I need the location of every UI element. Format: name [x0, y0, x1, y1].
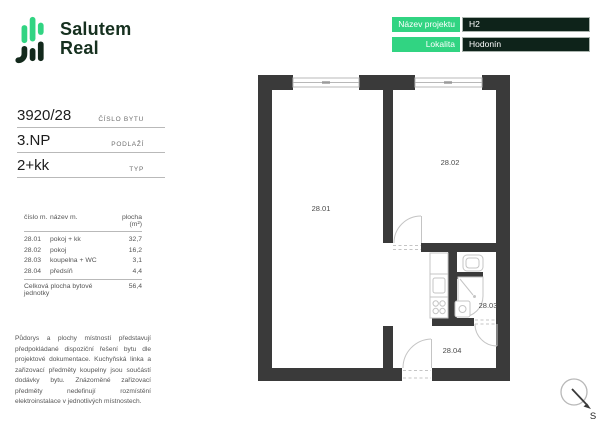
wall	[432, 368, 510, 381]
toilet-icon	[463, 255, 483, 271]
kitchen-counter-icon	[430, 253, 448, 318]
wall	[258, 75, 272, 381]
wall	[383, 90, 393, 243]
interior-walls	[383, 90, 496, 368]
room-label-28-03: 28.03	[479, 301, 498, 310]
floorplan-page: Salutem Real Název projektu H2 Lokalita …	[0, 0, 612, 433]
washing-machine-icon	[455, 301, 470, 317]
wall	[383, 326, 393, 368]
wall	[258, 75, 293, 90]
wall	[496, 75, 510, 381]
room-label-28-01: 28.01	[312, 204, 331, 213]
wall	[482, 75, 510, 90]
door-to-room2-icon	[393, 216, 422, 250]
compass-arrowhead-icon	[584, 404, 592, 410]
wall	[432, 318, 474, 326]
room-label-28-04: 28.04	[443, 346, 462, 355]
window-icon	[293, 78, 359, 87]
wall	[258, 368, 402, 381]
window-icon	[415, 78, 482, 87]
compass: S	[561, 379, 596, 422]
compass-north-label: S	[590, 411, 596, 422]
wall	[421, 243, 496, 252]
room-label-28-02: 28.02	[441, 158, 460, 167]
floorplan-drawing: 28.01 28.02 28.03 28.04 S	[0, 0, 612, 433]
wall	[359, 75, 415, 90]
bathroom-door-icon	[475, 320, 497, 346]
entrance-door-icon	[403, 339, 432, 378]
sink-icon	[433, 278, 445, 293]
